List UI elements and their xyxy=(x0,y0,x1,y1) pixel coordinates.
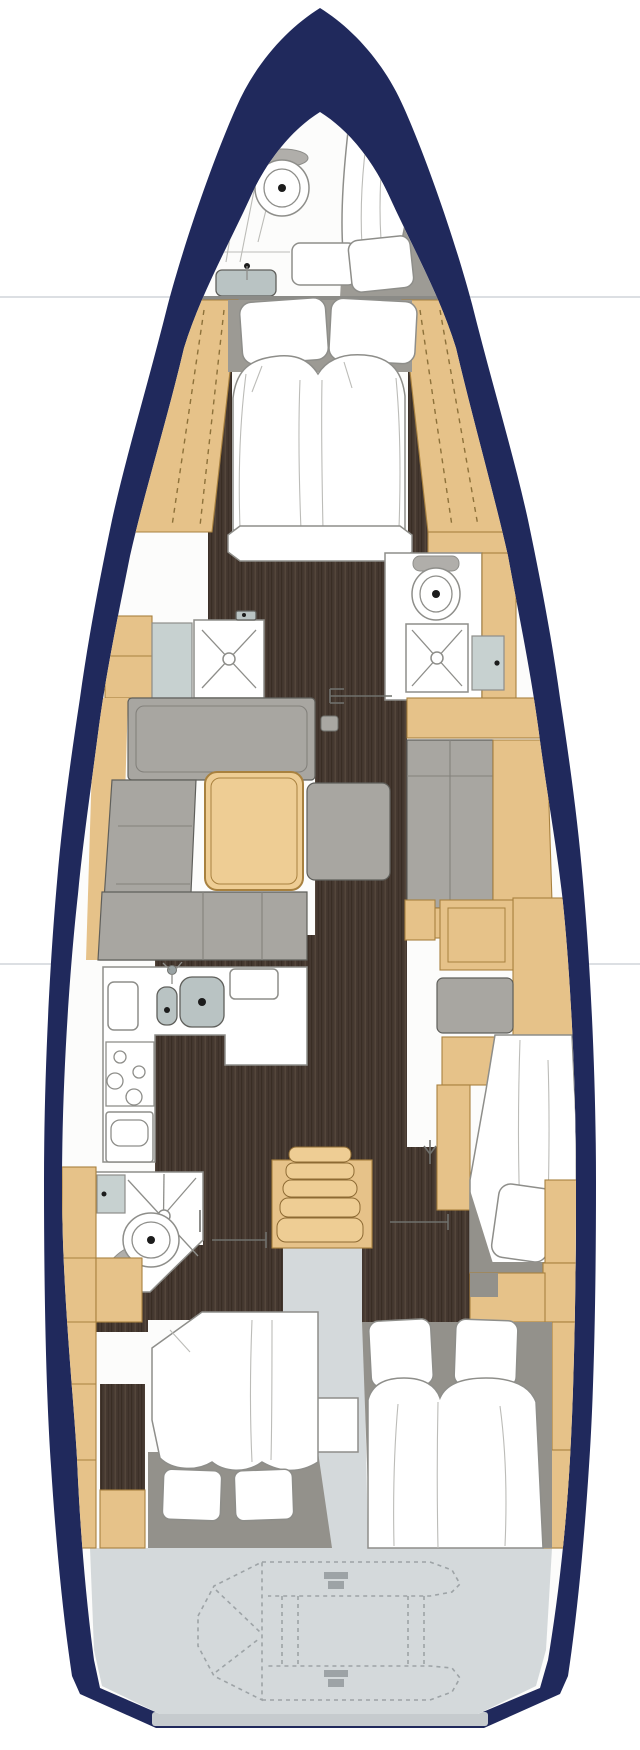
nav-locker xyxy=(405,900,435,940)
ottoman-seat xyxy=(307,783,390,880)
mini-sink xyxy=(236,611,256,620)
stair-step xyxy=(277,1218,363,1242)
floor-plan-drawing xyxy=(0,0,640,1750)
shower-icon xyxy=(406,624,468,692)
counter-tray xyxy=(108,982,138,1030)
port-aft-cabin xyxy=(148,1312,332,1548)
starboard-head xyxy=(385,532,516,700)
bow-pillow xyxy=(347,235,414,293)
transom-deck xyxy=(90,1548,552,1714)
pillow xyxy=(162,1469,222,1521)
double-bed-duvet xyxy=(152,1312,318,1470)
salon-table xyxy=(205,772,303,890)
bow-berth-seat xyxy=(292,243,356,285)
sink-small xyxy=(157,987,177,1025)
sofa-top-bench xyxy=(128,698,315,780)
double-bed-duvet xyxy=(233,355,405,530)
pillow xyxy=(328,298,417,364)
companionway-stairs xyxy=(272,1147,372,1248)
pillow xyxy=(234,1469,294,1521)
pillow xyxy=(454,1319,518,1387)
aft-head-cabinet xyxy=(97,1175,125,1213)
port-head-cabinet xyxy=(152,623,192,698)
yacht-floor-plan xyxy=(0,0,640,1750)
stair-step xyxy=(283,1180,357,1197)
forward-cabin xyxy=(132,297,508,561)
port-shower-room xyxy=(105,611,264,698)
chart-table xyxy=(440,900,513,970)
toilet-icon xyxy=(412,556,460,620)
nav-seat xyxy=(437,978,513,1033)
stair-step xyxy=(280,1198,360,1217)
starboard-shelf xyxy=(407,698,547,738)
swim-platform-edge xyxy=(152,1712,488,1726)
stair-step xyxy=(286,1163,354,1179)
cutting-board xyxy=(230,969,278,999)
stair-step xyxy=(289,1147,351,1162)
floor-hatch xyxy=(321,716,338,731)
pillow xyxy=(239,297,329,365)
oven-icon xyxy=(106,1112,153,1162)
pillow xyxy=(368,1318,433,1387)
